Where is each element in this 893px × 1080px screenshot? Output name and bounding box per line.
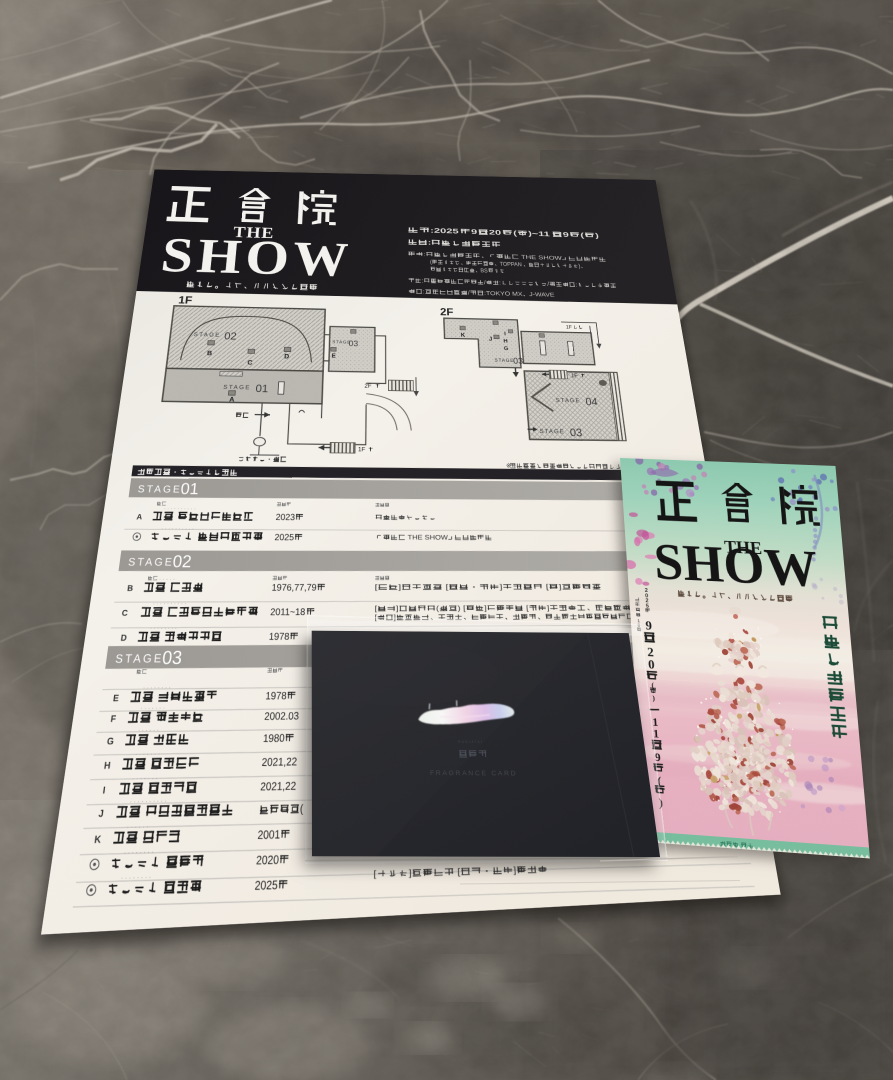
svg-text:9: 9: [562, 231, 569, 238]
svg-text:01: 01: [255, 383, 268, 395]
svg-text:03: 03: [513, 356, 524, 366]
svg-text:FRAGRANCE CARD: FRAGRANCE CARD: [430, 770, 518, 778]
svg-text:1976,77,79: 1976,77,79: [271, 583, 317, 593]
svg-text:STAGE: STAGE: [127, 556, 174, 569]
svg-text:]: ]: [398, 584, 401, 591]
svg-text:1F: 1F: [571, 373, 578, 380]
svg-text:2020: 2020: [256, 854, 280, 868]
svg-text:STAGE: STAGE: [494, 357, 514, 363]
svg-text:BS: BS: [480, 268, 488, 275]
svg-text:[: [: [523, 605, 529, 613]
svg-text:20: 20: [489, 229, 502, 237]
svg-text:THE SHOW: THE SHOW: [519, 254, 563, 261]
svg-text:SHOW: SHOW: [158, 229, 349, 288]
svg-text:]: ]: [396, 605, 399, 613]
svg-text:D: D: [284, 354, 289, 361]
svg-text:B: B: [127, 585, 134, 594]
svg-text:2025: 2025: [254, 880, 278, 894]
svg-text:): ): [652, 695, 655, 703]
svg-text:[: [: [373, 869, 376, 879]
svg-text:THE SHOW: THE SHOW: [406, 535, 450, 542]
svg-text:) [: ) [: [457, 605, 466, 613]
svg-text:1978: 1978: [265, 691, 287, 703]
svg-text::: :: [423, 252, 426, 258]
svg-text:2025: 2025: [274, 533, 294, 543]
svg-text:1F: 1F: [178, 295, 193, 307]
svg-text:[: [: [375, 605, 378, 613]
svg-text:2F: 2F: [440, 307, 454, 319]
svg-text:03: 03: [349, 338, 359, 348]
svg-text:9: 9: [471, 228, 478, 236]
svg-text:]: ]: [499, 584, 502, 591]
svg-text:2F: 2F: [364, 383, 371, 390]
svg-text:[: [: [454, 867, 461, 877]
svg-text:1F: 1F: [358, 446, 365, 454]
svg-text::2025: :2025: [430, 227, 459, 235]
svg-text:[: [: [543, 584, 549, 591]
svg-text:0: 0: [648, 657, 656, 672]
svg-text:STAGE: STAGE: [193, 332, 221, 339]
svg-text:J: J: [489, 336, 493, 343]
svg-text:STAGE: STAGE: [556, 397, 581, 404]
svg-text:STAGE: STAGE: [223, 384, 251, 391]
svg-text::: :: [428, 238, 432, 246]
svg-text:01: 01: [180, 480, 200, 499]
svg-text:2011~18: 2011~18: [270, 608, 306, 619]
svg-text:1978: 1978: [269, 632, 291, 643]
svg-text:1F: 1F: [566, 324, 573, 329]
svg-text:2023: 2023: [275, 513, 295, 523]
svg-text:E: E: [331, 353, 336, 360]
svg-text:STAGE: STAGE: [115, 651, 165, 666]
svg-text:9: 9: [645, 619, 652, 633]
svg-text:04: 04: [585, 396, 598, 408]
svg-text:2002.03: 2002.03: [264, 711, 300, 723]
svg-text:H: H: [103, 762, 111, 773]
svg-text:STAGE: STAGE: [539, 428, 565, 435]
svg-text:03: 03: [569, 427, 582, 439]
svg-text:G: G: [504, 346, 509, 353]
svg-text:J-WAVE: J-WAVE: [529, 292, 555, 298]
svg-text:(: (: [436, 605, 439, 613]
svg-text:D: D: [120, 635, 127, 644]
svg-text:K: K: [461, 332, 466, 339]
svg-text:[: [: [443, 584, 449, 591]
svg-text:02: 02: [224, 330, 237, 341]
svg-text:2021,22: 2021,22: [260, 781, 297, 794]
svg-text:2001: 2001: [257, 829, 281, 842]
svg-text:1980: 1980: [263, 733, 286, 745]
svg-text:A: A: [229, 397, 235, 404]
svg-text:RANJATAI: RANJATAI: [458, 739, 483, 744]
svg-text:03: 03: [161, 647, 183, 669]
svg-text:A: A: [136, 514, 143, 522]
svg-text:)~11: )~11: [528, 230, 550, 238]
svg-text:C: C: [247, 360, 253, 367]
svg-text:SHOW: SHOW: [652, 533, 820, 598]
svg-text:02: 02: [172, 552, 193, 572]
svg-text:C: C: [121, 610, 128, 619]
svg-text:TOPPAN: TOPPAN: [499, 261, 522, 268]
svg-text::TOKYO MX: :TOKYO MX: [484, 291, 523, 298]
svg-text:B: B: [207, 351, 213, 358]
svg-text:[: [: [375, 584, 378, 591]
svg-text:STAGE: STAGE: [137, 483, 182, 495]
svg-text:2021,22: 2021,22: [261, 757, 298, 770]
